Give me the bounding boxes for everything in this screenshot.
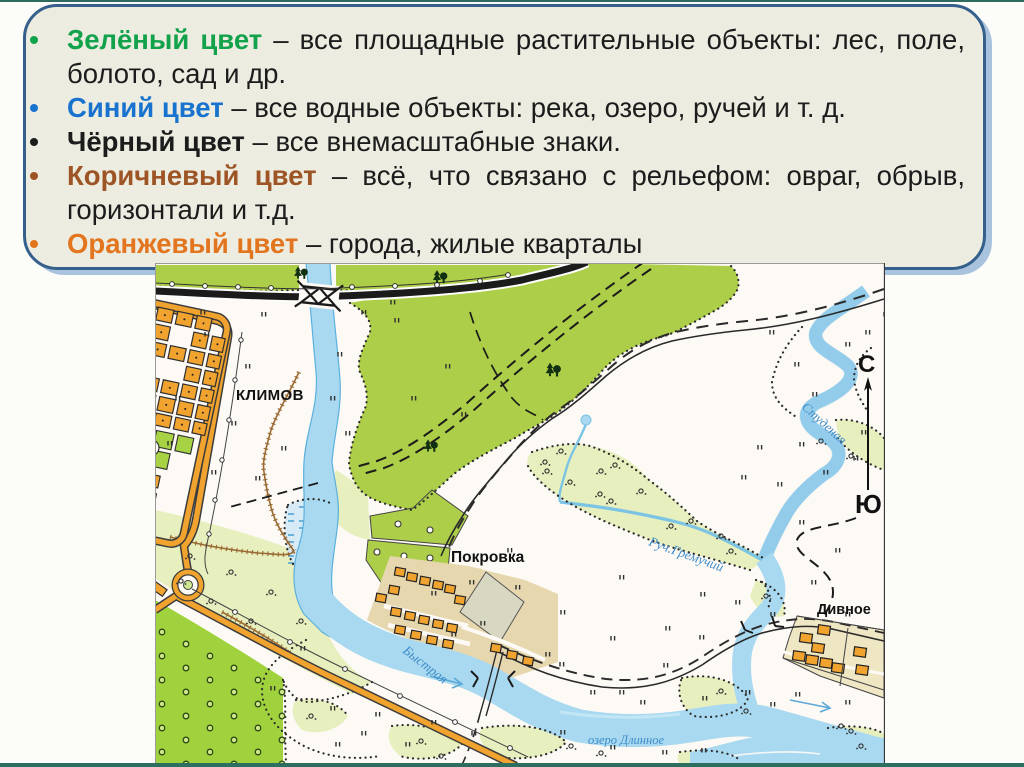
svg-text:КЛИМОВ: КЛИМОВ	[236, 387, 304, 404]
svg-text:Дивное: Дивное	[817, 602, 871, 618]
svg-text:Ю: Ю	[855, 489, 882, 519]
svg-text:Покровка: Покровка	[451, 549, 525, 566]
svg-text:С: С	[858, 351, 875, 378]
svg-text:озеро Длинное: озеро Длинное	[588, 733, 664, 747]
